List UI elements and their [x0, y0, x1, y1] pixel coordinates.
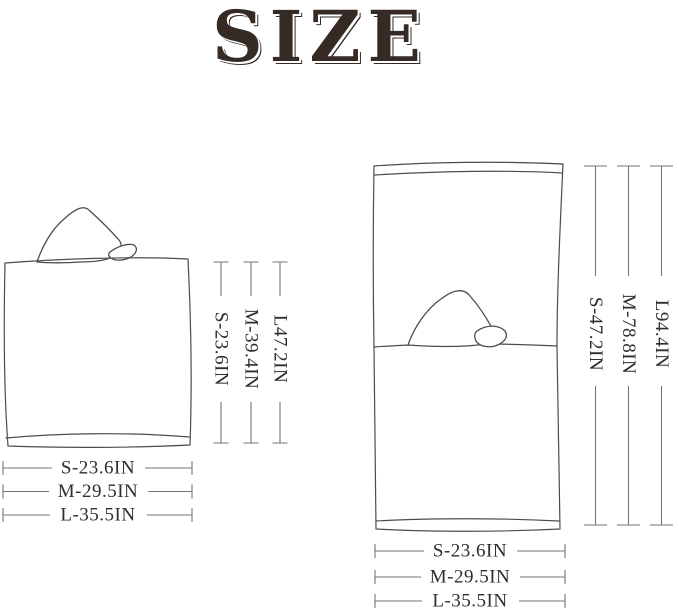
unfolded-bottom-hem-line — [376, 519, 559, 521]
unfolded-width-s-label: S-23.6IN — [433, 541, 507, 562]
dimension-height-s: S-23.6IN — [211, 262, 232, 443]
folded-height-dimensions: S-23.6IN M-39.4IN L47.2IN — [211, 262, 291, 443]
folded-width-l-label: L-35.5IN — [60, 505, 135, 526]
folded-height-l-label: L47.2IN — [270, 315, 291, 383]
dimension-width-l: L-35.5IN — [3, 505, 192, 526]
unfolded-width-l-label: L-35.5IN — [432, 591, 507, 612]
folded-height-m-label: M-39.4IN — [241, 309, 262, 390]
dimension-width-s: S-23.6IN — [3, 458, 192, 479]
folded-width-s-label: S-23.6IN — [61, 458, 135, 479]
dimension-length-m: M-78.8IN — [617, 166, 640, 525]
dimension-height-l: L47.2IN — [270, 262, 291, 443]
dimension-length-s: S-47.2IN — [584, 166, 607, 525]
unfolded-towel: S-47.2IN M-78.8IN L94.4IN S-23.6IN — [373, 162, 673, 611]
unfolded-width-m-label: M-29.5IN — [430, 567, 511, 588]
unfolded-length-s-label: S-47.2IN — [585, 297, 606, 371]
folded-height-s-label: S-23.6IN — [211, 312, 232, 386]
unfolded-length-l-label: L94.4IN — [651, 300, 672, 368]
folded-towel: S-23.6IN M-39.4IN L47.2IN S-23.6IN — [3, 208, 291, 526]
size-chart: SIZE S-23.6IN M-39.4IN — [0, 0, 679, 615]
dimension-width-m: M-29.5IN — [375, 567, 565, 588]
unfolded-width-dimensions: S-23.6IN M-29.5IN L-35.5IN — [375, 541, 565, 612]
size-diagram: S-23.6IN M-39.4IN L47.2IN S-23.6IN — [0, 0, 679, 615]
dimension-length-l: L94.4IN — [650, 166, 673, 525]
unfolded-top-hem-line — [375, 171, 562, 175]
dimension-height-m: M-39.4IN — [241, 262, 262, 443]
dimension-width-s: S-23.6IN — [375, 541, 565, 562]
unfolded-length-m-label: M-78.8IN — [618, 294, 639, 375]
folded-width-m-label: M-29.5IN — [58, 481, 139, 502]
folded-bottom-hem-line — [6, 434, 189, 438]
unfolded-height-dimensions: S-47.2IN M-78.8IN L94.4IN — [584, 166, 673, 525]
dimension-width-m: M-29.5IN — [3, 481, 192, 502]
unfolded-body-outline — [373, 162, 563, 531]
folded-width-dimensions: S-23.6IN M-29.5IN L-35.5IN — [3, 458, 192, 526]
dimension-width-l: L-35.5IN — [375, 591, 565, 612]
folded-body-outline — [4, 258, 191, 448]
